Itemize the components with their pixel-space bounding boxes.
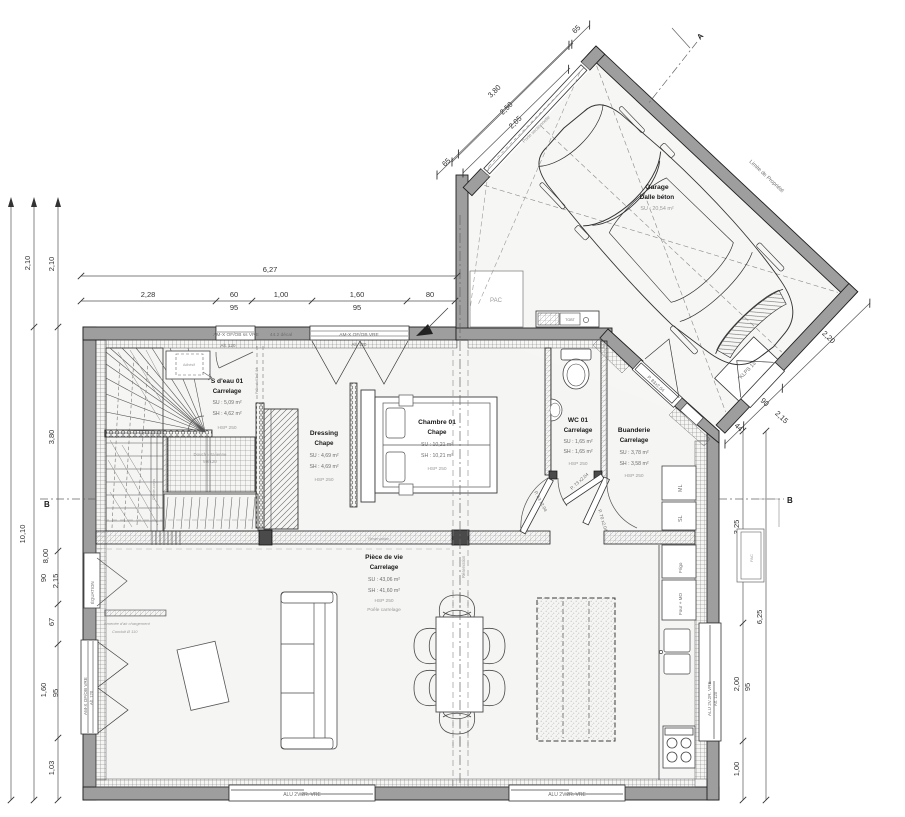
svg-text:Carrelage: Carrelage	[620, 437, 649, 444]
svg-text:Frigo: Frigo	[678, 562, 683, 573]
svg-text:SH : 1,65 m²: SH : 1,65 m²	[563, 449, 592, 455]
svg-text:Carrelage: Carrelage	[213, 388, 242, 395]
svg-text:P.Coul. 63x2.04: P.Coul. 63x2.04	[255, 367, 259, 394]
svg-text:Réservation: Réservation	[368, 536, 389, 541]
svg-text:Réservation: Réservation	[461, 555, 466, 578]
svg-text:Garage: Garage	[645, 184, 669, 191]
svg-text:ML: ML	[678, 485, 684, 493]
svg-text:6,25: 6,25	[755, 610, 764, 625]
svg-text:SU : 4,69 m²: SU : 4,69 m²	[309, 453, 338, 459]
svg-text:67: 67	[47, 618, 56, 626]
svg-text:ÉQUATION: ÉQUATION	[90, 581, 95, 604]
svg-text:SH : 4,69 m²: SH : 4,69 m²	[309, 464, 338, 470]
svg-text:SH : 41,60 m²: SH : 41,60 m²	[368, 588, 400, 594]
svg-text:PAC: PAC	[490, 298, 503, 304]
svg-text:2,28: 2,28	[141, 290, 156, 299]
svg-text:3,80: 3,80	[47, 430, 56, 445]
svg-text:SU : 10,21 m²: SU : 10,21 m²	[421, 442, 453, 448]
svg-text:1,03: 1,03	[47, 761, 56, 776]
svg-text:2,10: 2,10	[23, 256, 32, 271]
svg-text:HSP 250: HSP 250	[374, 598, 393, 604]
svg-text:SU : 1,65 m²: SU : 1,65 m²	[563, 439, 592, 445]
svg-text:HSP 250: HSP 250	[217, 425, 236, 431]
svg-text:95: 95	[743, 683, 752, 691]
svg-text:HSP 250: HSP 250	[568, 461, 587, 467]
svg-text:90: 90	[39, 574, 48, 582]
svg-text:HSP 250: HSP 250	[314, 477, 333, 483]
svg-text:60: 60	[230, 290, 238, 299]
svg-text:2,15: 2,15	[51, 574, 60, 589]
svg-text:SU : 43,06 m²: SU : 43,06 m²	[368, 577, 400, 583]
svg-text:HSP 250: HSP 250	[624, 473, 643, 479]
svg-text:AM-X OF/OB ss VRE: AM-X OF/OB ss VRE	[213, 332, 259, 338]
svg-text:SH : 4,62 m²: SH : 4,62 m²	[212, 411, 241, 417]
svg-text:Buanderie: Buanderie	[618, 427, 651, 434]
svg-text:Chambre 01: Chambre 01	[418, 419, 456, 426]
svg-text:Pièce de vie: Pièce de vie	[365, 554, 403, 561]
svg-text:B: B	[44, 500, 50, 509]
svg-text:Adhésif: Adhésif	[183, 363, 195, 367]
svg-text:B: B	[787, 496, 793, 505]
svg-text:SH : 10,21 m²: SH : 10,21 m²	[421, 453, 453, 459]
svg-text:SU : 3,78 m²: SU : 3,78 m²	[619, 450, 648, 456]
svg-text:AM-X OF/OB VRE: AM-X OF/OB VRE	[339, 332, 378, 338]
svg-text:Carrelage: Carrelage	[564, 427, 593, 434]
svg-text:ALU 2V.2R. VRE: ALU 2V.2R. VRE	[283, 792, 321, 798]
svg-text:6,27: 6,27	[263, 265, 278, 274]
svg-text:95: 95	[230, 303, 238, 312]
svg-text:S d'eau 01: S d'eau 01	[211, 378, 244, 385]
svg-text:10,10: 10,10	[18, 525, 27, 544]
svg-text:8,00: 8,00	[41, 549, 50, 564]
svg-text:90/120: 90/120	[203, 459, 217, 464]
svg-text:1,00: 1,00	[732, 762, 741, 777]
svg-text:AM-X OF/OB VRE: AM-X OF/OB VRE	[83, 677, 88, 715]
svg-text:80: 80	[426, 290, 434, 299]
svg-text:95: 95	[353, 303, 361, 312]
svg-text:WC 01: WC 01	[568, 417, 588, 424]
svg-text:Poêle carrelage: Poêle carrelage	[367, 607, 401, 613]
svg-text:1,00: 1,00	[274, 290, 289, 299]
svg-text:ALU 2V.2R. VRE: ALU 2V.2R. VRE	[548, 792, 586, 798]
svg-text:Alt. 120: Alt. 120	[221, 343, 236, 348]
svg-text:Amenée d'air chargement: Amenée d'air chargement	[103, 621, 151, 626]
svg-text:1,60: 1,60	[39, 683, 48, 698]
svg-text:SH : 3,58 m²: SH : 3,58 m²	[619, 461, 648, 467]
svg-text:Conduit Ø 110: Conduit Ø 110	[112, 629, 138, 634]
svg-text:SL: SL	[678, 515, 684, 522]
svg-text:2,00: 2,00	[732, 677, 741, 692]
svg-text:SU : 20,54 m²: SU : 20,54 m²	[640, 206, 673, 212]
svg-text:SU : 5,09 m²: SU : 5,09 m²	[212, 400, 241, 406]
svg-text:ALU 2V.2R. VRE: ALU 2V.2R. VRE	[707, 681, 712, 716]
svg-text:Garde-corps: Garde-corps	[152, 479, 156, 500]
svg-text:95: 95	[51, 689, 60, 697]
svg-text:Chape: Chape	[428, 429, 447, 436]
svg-text:1,60: 1,60	[350, 290, 365, 299]
svg-text:Dalle béton: Dalle béton	[640, 194, 675, 201]
svg-text:Carrelage: Carrelage	[370, 564, 399, 571]
svg-text:HSP 250: HSP 250	[427, 466, 446, 472]
svg-text:TGBT: TGBT	[565, 318, 575, 322]
svg-text:PAC: PAC	[749, 554, 754, 562]
svg-text:Douche Italienne: Douche Italienne	[194, 452, 228, 457]
svg-text:Alt. 120: Alt. 120	[713, 691, 718, 706]
svg-text:Alt. 120: Alt. 120	[89, 690, 94, 705]
svg-text:Four + MO: Four + MO	[678, 592, 683, 615]
svg-text:Chape: Chape	[315, 440, 334, 447]
svg-text:2,10: 2,10	[47, 257, 56, 272]
svg-text:44.2 décal: 44.2 décal	[270, 332, 292, 338]
svg-text:Dressing: Dressing	[310, 430, 338, 437]
